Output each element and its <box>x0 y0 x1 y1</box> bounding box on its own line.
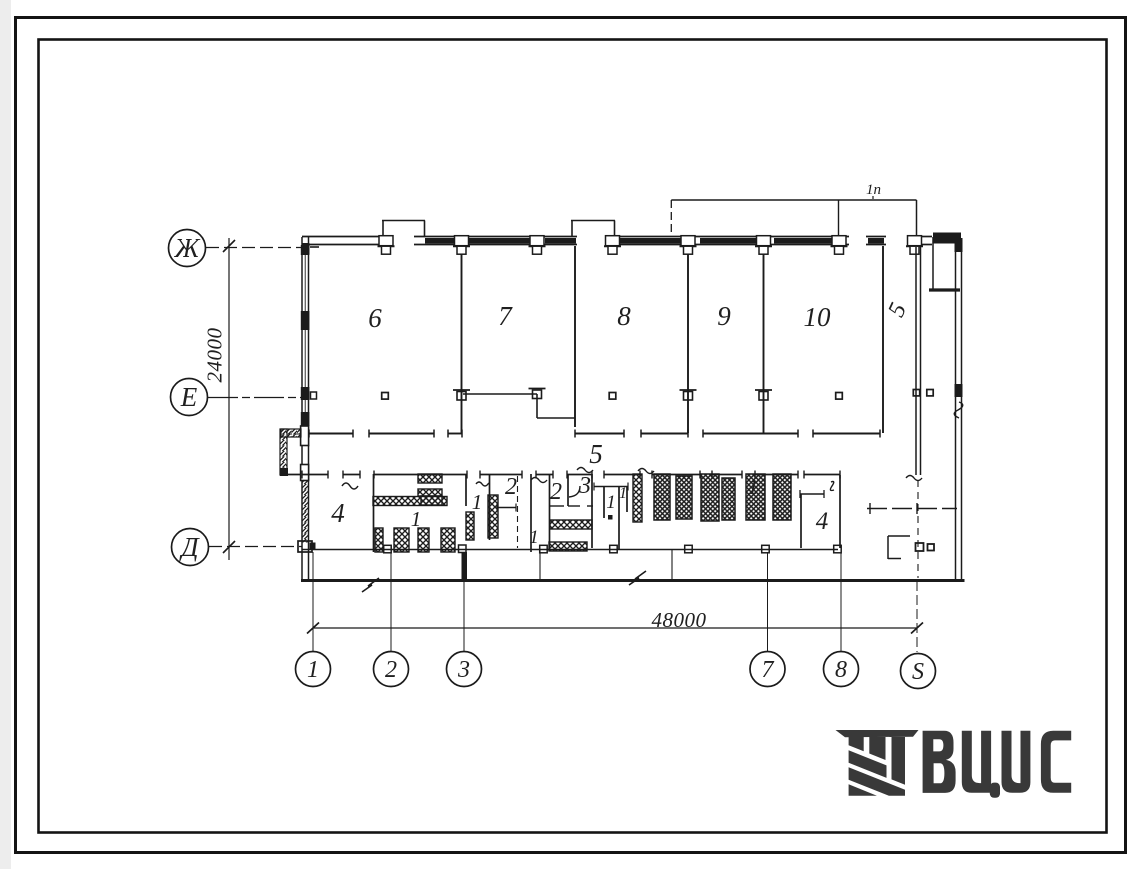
svg-text:1: 1 <box>529 527 539 548</box>
svg-text:4: 4 <box>331 498 345 528</box>
svg-text:4: 4 <box>816 508 829 535</box>
svg-text:2: 2 <box>505 474 517 500</box>
svg-text:Д: Д <box>178 532 200 562</box>
svg-text:1п: 1п <box>866 182 881 198</box>
svg-text:7: 7 <box>498 301 513 331</box>
svg-text:1: 1 <box>606 492 616 513</box>
svg-text:3: 3 <box>457 657 470 683</box>
svg-text:6: 6 <box>368 303 382 333</box>
svg-text:2: 2 <box>385 657 397 683</box>
svg-text:Е: Е <box>180 382 198 412</box>
svg-text:1: 1 <box>748 475 759 499</box>
svg-text:Ж: Ж <box>174 233 201 263</box>
svg-text:10: 10 <box>804 302 832 332</box>
svg-text:24000: 24000 <box>203 328 227 383</box>
svg-text:7: 7 <box>762 657 775 683</box>
svg-text:9: 9 <box>717 301 731 331</box>
svg-text:1: 1 <box>619 485 627 502</box>
svg-text:1: 1 <box>307 657 319 683</box>
svg-text:48000: 48000 <box>652 608 707 632</box>
svg-text:8: 8 <box>617 301 631 331</box>
svg-text:S: S <box>912 659 924 685</box>
svg-text:8: 8 <box>835 657 847 683</box>
svg-text:2: 2 <box>550 479 562 505</box>
svg-text:1: 1 <box>472 490 483 514</box>
svg-text:3: 3 <box>578 473 591 499</box>
svg-text:5: 5 <box>589 439 603 469</box>
svg-text:1: 1 <box>411 507 422 531</box>
